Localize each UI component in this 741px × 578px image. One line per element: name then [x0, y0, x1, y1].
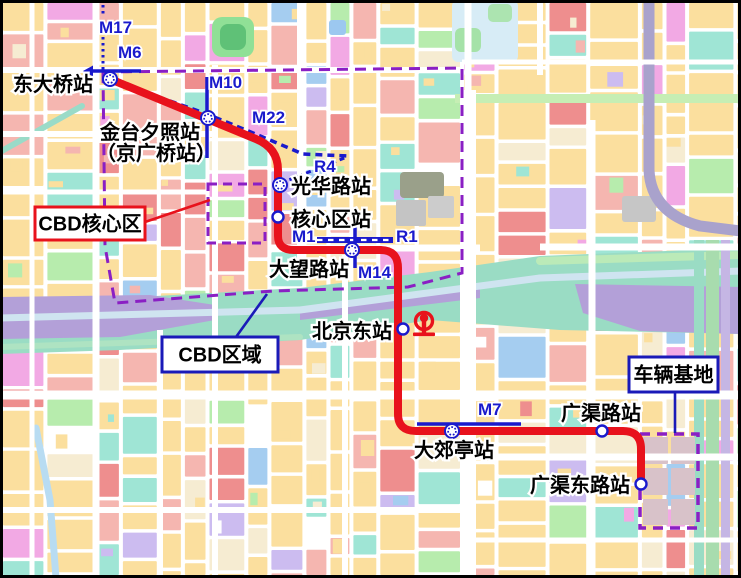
city-block-accent	[421, 362, 436, 372]
city-block	[47, 173, 94, 206]
map-feature	[721, 240, 730, 578]
city-block	[737, 465, 738, 487]
metro-line-label: M1	[292, 227, 316, 246]
city-block	[737, 187, 738, 212]
map-feature	[622, 196, 656, 222]
city-block	[737, 107, 738, 148]
city-block-accent	[570, 18, 576, 28]
city-block	[161, 571, 181, 575]
city-block-accent	[130, 286, 141, 294]
city-block	[98, 500, 119, 540]
city-block-accent	[284, 529, 295, 536]
city-block	[271, 573, 302, 575]
street	[540, 244, 741, 251]
street	[462, 60, 741, 65]
city-block-accent	[312, 363, 326, 374]
city-block-accent	[108, 414, 114, 422]
city-block-accent	[609, 178, 623, 193]
city-block	[689, 73, 733, 94]
city-block-accent	[218, 185, 233, 192]
city-block-accent	[100, 468, 109, 481]
city-block	[123, 417, 157, 454]
city-block	[353, 510, 376, 532]
city-block-accent	[167, 373, 176, 386]
city-block-accent	[312, 469, 319, 482]
city-block	[550, 433, 587, 457]
city-block	[737, 349, 738, 382]
metro-line-label: M17	[99, 18, 132, 37]
city-block	[185, 523, 206, 560]
city-block	[47, 23, 94, 39]
china-railway-station-icon	[413, 313, 435, 337]
city-block	[642, 541, 663, 568]
city-block	[161, 534, 181, 568]
city-block-accent	[8, 263, 22, 277]
city-block	[550, 506, 587, 541]
city-block-accent	[272, 453, 288, 466]
city-block-accent	[101, 549, 113, 557]
city-block	[3, 561, 43, 575]
station-marker	[597, 426, 608, 437]
city-block	[3, 158, 43, 186]
station-label: 东大桥站	[13, 72, 93, 96]
interchange-station-marker	[345, 243, 359, 257]
city-block-accent	[146, 208, 153, 215]
city-block	[123, 533, 157, 558]
city-block	[380, 80, 414, 113]
city-block	[419, 531, 460, 548]
city-block	[590, 42, 638, 63]
street	[212, 65, 218, 578]
city-block	[185, 254, 206, 288]
city-block	[161, 499, 181, 530]
map-feature	[220, 24, 246, 50]
station-label: 广渠东路站	[530, 473, 630, 497]
city-block-accent	[382, 4, 390, 11]
city-block	[590, 541, 638, 568]
metro-line-label: M14	[358, 263, 392, 282]
city-block	[353, 558, 376, 575]
city-block	[737, 43, 738, 71]
city-block-accent	[274, 376, 286, 384]
city-block	[161, 455, 181, 496]
map-feature	[671, 499, 695, 525]
city-block-accent	[364, 44, 371, 59]
marker	[597, 426, 608, 437]
city-block-accent	[161, 180, 168, 186]
city-block-accent	[644, 333, 652, 342]
city-block-accent	[452, 349, 459, 356]
metro-planning-map: 东大桥站金台夕照站（京广桥站）光华路站核心区站大望路站北京东站大郊亭站广渠路站广…	[0, 0, 741, 578]
city-block	[499, 525, 546, 567]
city-block-accent	[162, 264, 173, 274]
city-block	[161, 213, 181, 247]
city-block	[667, 75, 686, 113]
city-block	[550, 345, 587, 382]
city-block	[331, 78, 350, 110]
map-feature	[643, 499, 668, 525]
city-block	[590, 572, 638, 575]
marker	[273, 212, 284, 223]
station-label: 大望路站	[269, 257, 349, 281]
map-feature	[400, 172, 444, 198]
city-block	[47, 354, 94, 374]
city-block-accent	[624, 508, 634, 522]
city-block	[419, 123, 460, 163]
city-block-accent	[308, 404, 323, 413]
city-block	[123, 457, 157, 474]
railway-icon-base	[413, 333, 435, 337]
city-block	[306, 110, 326, 144]
station-label: （京广桥站）	[96, 141, 216, 165]
city-block-accent	[222, 276, 234, 283]
city-block-accent	[13, 44, 27, 58]
map-feature	[706, 240, 719, 578]
marker-inner	[106, 75, 114, 83]
interchange-station-marker	[273, 178, 287, 192]
city-block	[499, 188, 546, 208]
marker	[636, 479, 647, 490]
city-block	[550, 188, 587, 229]
city-block	[419, 551, 460, 572]
city-block-accent	[393, 496, 408, 506]
city-block-accent	[49, 181, 63, 187]
city-block	[47, 3, 94, 20]
city-block	[499, 103, 546, 140]
city-block-accent	[10, 160, 22, 172]
railway-icon-dot	[420, 314, 428, 322]
interchange-station-marker	[201, 111, 215, 125]
city-block	[248, 408, 267, 445]
city-block	[123, 244, 157, 277]
city-block	[47, 400, 94, 426]
city-block-accent	[424, 78, 435, 85]
city-block-accent	[334, 166, 344, 172]
city-block-accent	[279, 76, 291, 83]
street	[589, 120, 596, 578]
callout-label: CBD核心区	[38, 212, 141, 236]
map-feature	[396, 200, 426, 226]
city-block	[380, 28, 414, 44]
city-block	[737, 491, 738, 528]
city-block	[185, 427, 206, 451]
city-block	[499, 236, 546, 255]
city-block-accent	[518, 85, 528, 92]
city-block	[380, 515, 414, 550]
city-block	[737, 3, 738, 39]
marker	[398, 324, 409, 335]
city-block	[271, 550, 302, 570]
city-block	[667, 45, 686, 71]
street	[93, 0, 100, 578]
city-block-accent	[358, 483, 370, 494]
city-block	[499, 501, 546, 522]
city-block	[185, 398, 206, 424]
city-block	[667, 3, 686, 42]
city-block	[550, 128, 587, 145]
map-feature	[329, 20, 346, 35]
city-block	[185, 3, 206, 32]
city-block	[123, 478, 157, 502]
city-block	[667, 530, 686, 568]
city-block-accent	[61, 28, 69, 38]
street	[0, 507, 462, 513]
city-block	[185, 563, 206, 575]
city-block	[380, 554, 414, 576]
city-block	[380, 117, 414, 140]
city-block	[185, 183, 206, 215]
city-block	[248, 261, 267, 289]
map-canvas: 东大桥站金台夕照站（京广桥站）光华路站核心区站大望路站北京东站大郊亭站广渠路站广…	[0, 0, 741, 578]
street	[462, 454, 741, 461]
city-block	[499, 570, 546, 575]
city-block	[590, 3, 638, 38]
city-block-accent	[607, 72, 623, 87]
city-block-accent	[250, 493, 257, 505]
city-block	[689, 3, 733, 28]
city-block	[306, 420, 326, 461]
city-block	[550, 149, 587, 185]
city-block	[689, 135, 733, 156]
city-block	[248, 528, 267, 553]
city-block-accent	[478, 481, 492, 496]
city-block	[161, 421, 181, 451]
city-block	[47, 142, 94, 169]
city-block	[3, 3, 43, 31]
city-block	[380, 450, 414, 492]
city-block-accent	[333, 539, 343, 554]
city-block	[185, 35, 206, 60]
city-block	[737, 152, 738, 183]
marker-inner	[276, 181, 284, 189]
station-marker	[398, 324, 409, 335]
city-block	[419, 98, 460, 119]
station-marker	[273, 212, 284, 223]
city-block	[550, 544, 587, 575]
city-block	[499, 337, 546, 378]
city-block	[353, 3, 376, 39]
callout-label: 车辆基地	[634, 363, 714, 387]
city-block	[123, 353, 157, 383]
city-block	[642, 401, 663, 423]
city-block	[306, 87, 326, 106]
city-block	[667, 166, 686, 205]
map-feature	[455, 94, 741, 103]
metro-line-label: R4	[314, 157, 336, 176]
city-block	[306, 550, 326, 575]
marker-inner	[448, 427, 456, 435]
city-block-accent	[520, 401, 532, 416]
station-label: 光华路站	[290, 174, 371, 198]
metro-line-label: M22	[252, 108, 285, 127]
city-block	[689, 159, 733, 193]
city-block	[419, 472, 460, 504]
metro-line-label: M7	[478, 400, 502, 419]
city-block	[271, 508, 302, 547]
city-block-accent	[667, 138, 681, 147]
marker-inner	[348, 246, 356, 254]
station-label: 广渠路站	[561, 401, 641, 425]
city-block	[353, 107, 376, 146]
city-block-accent	[277, 430, 291, 438]
interchange-station-marker	[103, 72, 117, 86]
city-block-accent	[226, 105, 239, 113]
city-block	[499, 143, 546, 160]
city-block	[353, 535, 376, 554]
city-block-accent	[516, 167, 529, 177]
city-block	[185, 455, 206, 476]
city-block-accent	[361, 440, 374, 456]
city-block	[3, 529, 43, 558]
map-feature	[488, 4, 512, 22]
city-block	[47, 253, 94, 281]
city-block-accent	[576, 40, 585, 52]
city-block	[499, 212, 546, 232]
street	[465, 0, 472, 90]
metro-line-label: R1	[396, 227, 418, 246]
city-block	[3, 348, 43, 386]
station-label: 大郊亭站	[414, 438, 494, 462]
street	[462, 538, 741, 543]
metro-line-label: M10	[209, 73, 242, 92]
city-block	[353, 401, 376, 431]
map-feature	[671, 468, 695, 495]
interchange-station-marker	[445, 424, 459, 438]
city-block	[642, 571, 663, 575]
station-label: 北京东站	[312, 319, 392, 343]
city-block-accent	[65, 147, 80, 154]
city-block	[98, 433, 119, 461]
city-block	[331, 114, 350, 146]
street	[342, 255, 348, 578]
city-block-accent	[391, 147, 400, 155]
city-block	[123, 386, 157, 414]
station-marker	[636, 479, 647, 490]
city-block	[550, 3, 587, 31]
city-block	[306, 3, 326, 39]
city-block-accent	[195, 498, 205, 508]
city-block	[667, 117, 686, 135]
city-block	[306, 43, 326, 63]
city-block-accent	[56, 434, 68, 448]
station-label: 金台夕照站	[99, 120, 200, 144]
city-block	[248, 448, 267, 485]
city-block	[47, 429, 94, 451]
metro-line-label: M6	[118, 43, 142, 62]
city-block	[667, 572, 686, 575]
city-block-accent	[49, 380, 64, 392]
railway-icon-stem	[422, 321, 426, 333]
city-block	[161, 3, 181, 37]
city-block	[185, 218, 206, 250]
city-block	[353, 68, 376, 104]
city-block	[47, 454, 94, 477]
city-block	[248, 557, 267, 575]
city-block	[271, 476, 302, 504]
map-feature	[428, 196, 454, 218]
city-block	[306, 520, 326, 546]
city-block	[737, 531, 738, 571]
callout-label: CBD区域	[178, 343, 261, 367]
marker-inner	[204, 114, 212, 122]
city-block	[590, 135, 638, 173]
city-block	[3, 451, 43, 491]
